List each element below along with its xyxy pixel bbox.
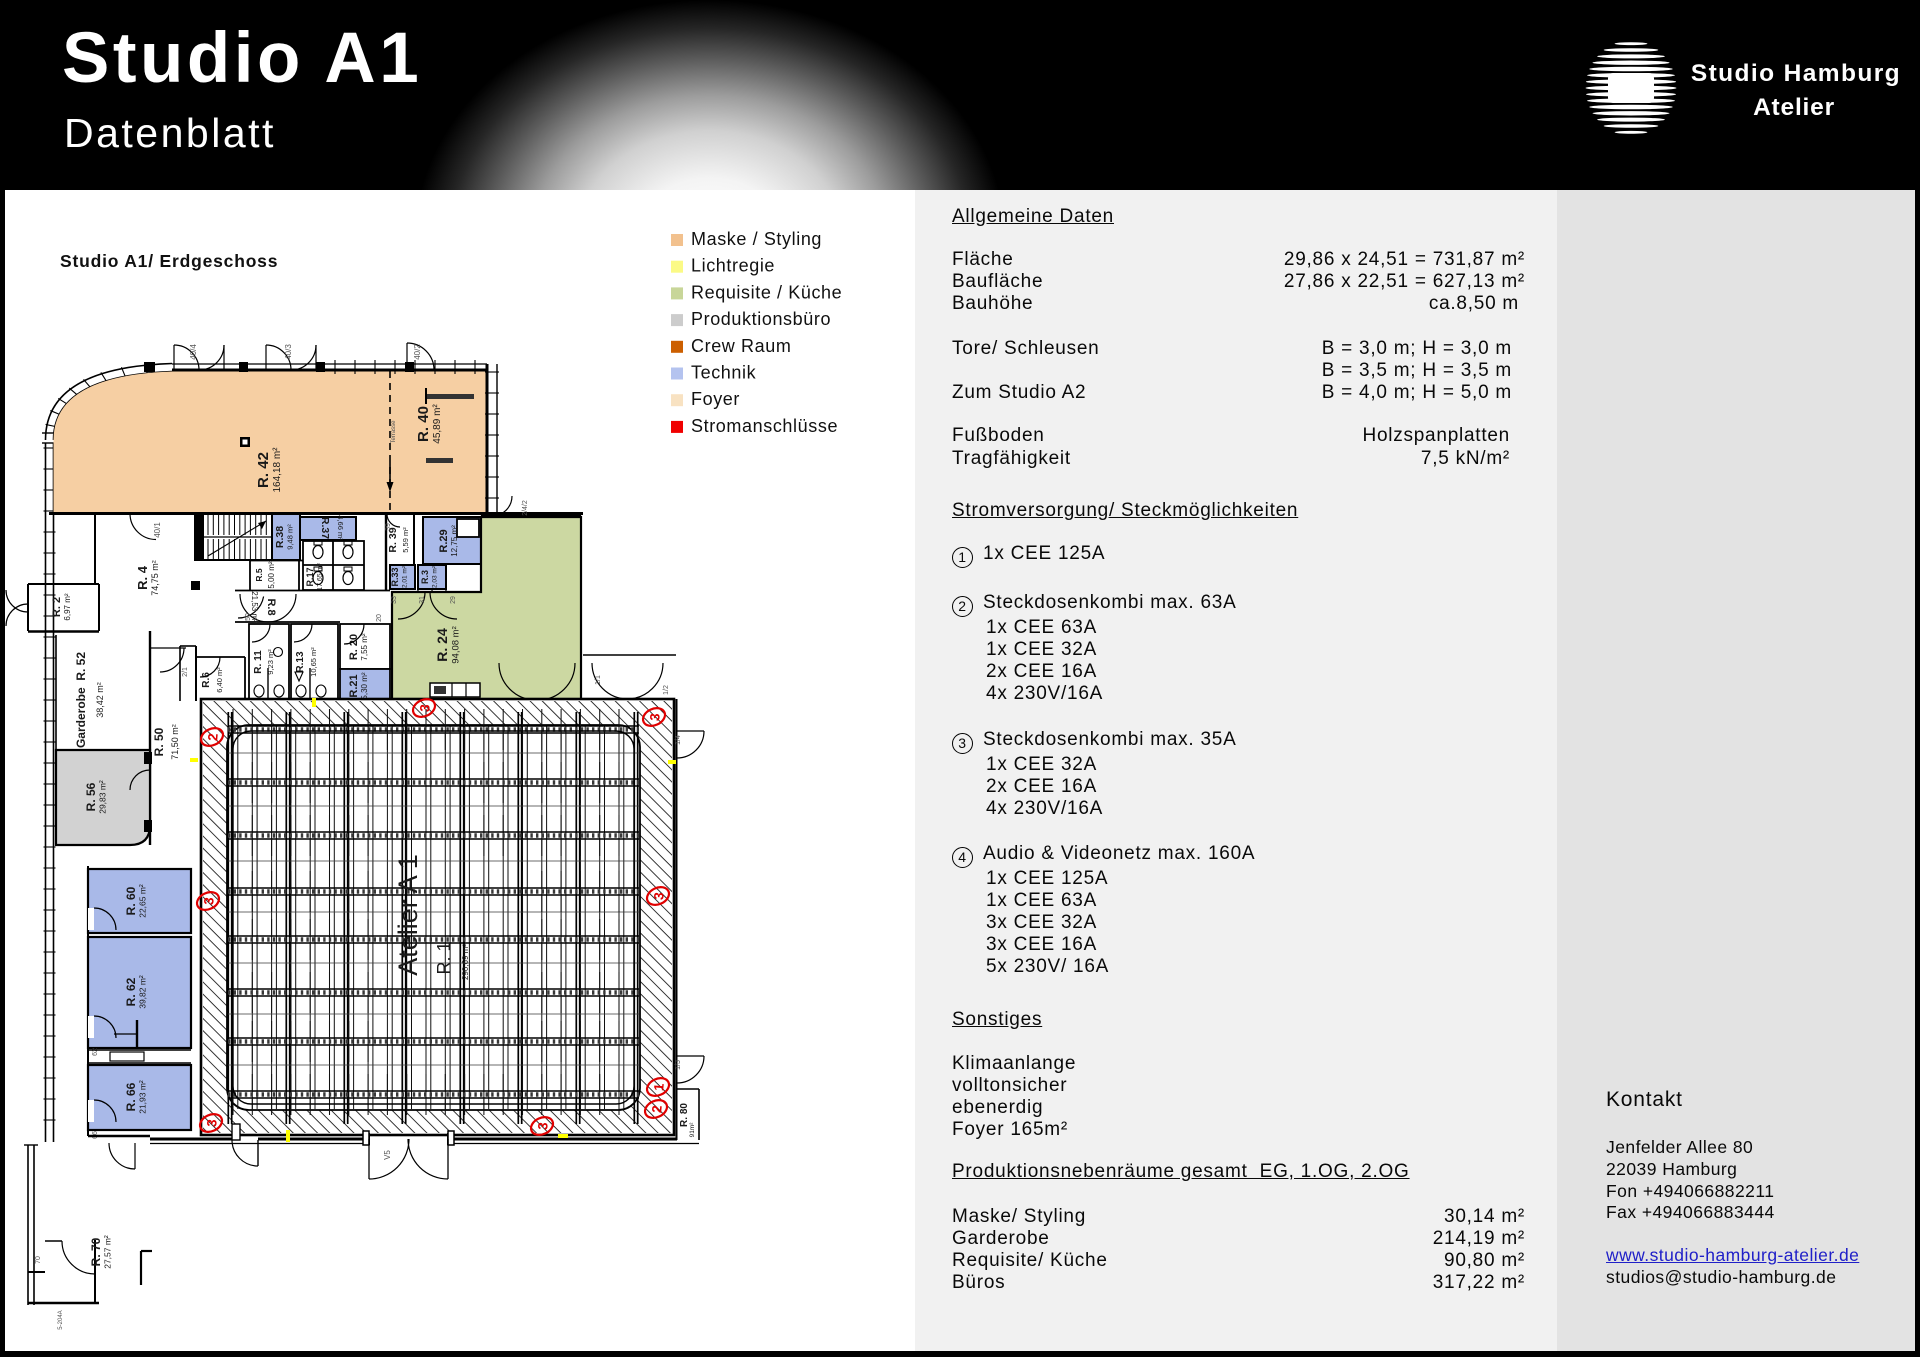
svg-text:70: 70 xyxy=(35,1256,42,1264)
svg-text:1/3: 1/3 xyxy=(675,1060,682,1070)
svg-text:39,82 m²: 39,82 m² xyxy=(138,975,148,1009)
svg-text:R. 4: R. 4 xyxy=(135,565,150,590)
svg-text:R. 2: R. 2 xyxy=(51,597,63,617)
svg-text:R.38: R.38 xyxy=(274,526,286,548)
svg-text:1/4: 1/4 xyxy=(675,735,682,745)
svg-text:9,48 m²: 9,48 m² xyxy=(286,524,295,550)
svg-text:27,57 m²: 27,57 m² xyxy=(103,1235,113,1269)
svg-text:R. 60: R. 60 xyxy=(124,886,138,915)
svg-text:1/1: 1/1 xyxy=(595,675,602,685)
svg-text:38,42 m²: 38,42 m² xyxy=(95,682,105,718)
svg-text:21,93 m²: 21,93 m² xyxy=(138,1080,148,1114)
svg-text:2: 2 xyxy=(205,733,221,742)
svg-text:Requisite / Küche: Requisite / Küche xyxy=(691,282,842,302)
svg-text:45,89 m²: 45,89 m² xyxy=(432,404,443,444)
svg-text:5,00 m²: 5,00 m² xyxy=(267,561,276,588)
svg-text:R.37: R.37 xyxy=(319,517,331,539)
svg-text:62: 62 xyxy=(92,1048,99,1056)
svg-text:R. 56: R. 56 xyxy=(84,782,98,811)
svg-text:7,55 m²: 7,55 m² xyxy=(360,633,369,660)
svg-text:50: 50 xyxy=(245,613,252,621)
svg-text:R. 70: R. 70 xyxy=(89,1237,103,1266)
svg-text:39: 39 xyxy=(385,523,392,531)
svg-text:4,66 m²: 4,66 m² xyxy=(336,515,345,541)
svg-text:Atelier A 1: Atelier A 1 xyxy=(393,854,423,976)
svg-text:Garderobe R. 52: Garderobe R. 52 xyxy=(74,652,88,748)
svg-text:R.5: R.5 xyxy=(254,568,264,582)
svg-text:Terrasse: Terrasse xyxy=(391,420,397,444)
svg-text:5,59 m²: 5,59 m² xyxy=(401,527,410,553)
svg-text:R. 40: R. 40 xyxy=(415,406,432,442)
svg-text:2,01 m²: 2,01 m² xyxy=(402,565,409,588)
svg-text:2: 2 xyxy=(649,1105,665,1114)
svg-text:5-204A: 5-204A xyxy=(58,1310,64,1329)
svg-text:R.17: R.17 xyxy=(305,567,315,586)
svg-text:Maske / Styling: Maske / Styling xyxy=(691,229,822,249)
svg-text:94,08 m²: 94,08 m² xyxy=(451,626,462,664)
svg-text:Foyer: Foyer xyxy=(691,389,740,409)
svg-text:V5: V5 xyxy=(383,1150,392,1160)
svg-text:R.21: R.21 xyxy=(348,674,360,697)
svg-text:Crew Raum: Crew Raum xyxy=(691,336,791,356)
svg-text:R. 11: R. 11 xyxy=(253,650,264,674)
svg-text:Technik: Technik xyxy=(691,363,757,383)
svg-text:6,97 m²: 6,97 m² xyxy=(63,593,72,620)
svg-text:40/1: 40/1 xyxy=(153,522,162,538)
svg-text:91m²: 91m² xyxy=(689,1122,696,1138)
svg-text:40/3: 40/3 xyxy=(284,344,293,360)
svg-text:R. 24: R. 24 xyxy=(434,628,450,662)
svg-text:R.3: R.3 xyxy=(420,570,430,584)
svg-text:6,40 m²: 6,40 m² xyxy=(215,667,224,693)
svg-text:12,75 m²: 12,75 m² xyxy=(450,525,459,557)
svg-text:33: 33 xyxy=(391,596,398,604)
svg-text:40/4: 40/4 xyxy=(189,344,198,360)
svg-text:31: 31 xyxy=(419,596,426,604)
svg-text:2/4/2: 2/4/2 xyxy=(522,500,529,516)
svg-text:22,65 m²: 22,65 m² xyxy=(138,884,148,918)
svg-text:R.33: R.33 xyxy=(390,567,400,586)
svg-text:40/2: 40/2 xyxy=(413,344,422,360)
svg-text:Studio A1/ Erdgeschoss: Studio A1/ Erdgeschoss xyxy=(60,251,278,271)
svg-text:164,18 m²: 164,18 m² xyxy=(272,447,283,493)
svg-text:R.8: R.8 xyxy=(265,598,277,615)
svg-text:17,65 m²: 17,65 m² xyxy=(317,563,324,591)
svg-text:290,69 m²: 290,69 m² xyxy=(461,944,470,980)
svg-text:Lichtregie: Lichtregie xyxy=(691,256,775,276)
svg-text:1/2: 1/2 xyxy=(663,685,670,695)
svg-text:R. 50: R. 50 xyxy=(152,727,166,756)
svg-text:29,83 m²: 29,83 m² xyxy=(98,780,108,814)
svg-text:5,30 m²: 5,30 m² xyxy=(360,672,369,699)
svg-text:74,75 m²: 74,75 m² xyxy=(150,560,160,596)
svg-text:R. 42: R. 42 xyxy=(255,452,272,488)
svg-text:R. 62: R. 62 xyxy=(124,977,138,1006)
svg-text:2/1: 2/1 xyxy=(182,667,189,677)
svg-text:R. 66: R. 66 xyxy=(124,1082,138,1111)
svg-text:R. 1: R. 1 xyxy=(434,941,454,974)
svg-text:Produktionsbüro: Produktionsbüro xyxy=(691,309,831,329)
svg-text:20: 20 xyxy=(376,614,383,622)
svg-text:29: 29 xyxy=(450,596,457,604)
svg-text:R.13: R.13 xyxy=(295,651,306,673)
svg-text:71,50 m²: 71,50 m² xyxy=(170,724,180,760)
svg-text:Stromanschlüsse: Stromanschlüsse xyxy=(691,416,838,436)
svg-text:R.29: R.29 xyxy=(438,529,450,552)
svg-text:2,03 m²: 2,03 m² xyxy=(432,565,439,588)
